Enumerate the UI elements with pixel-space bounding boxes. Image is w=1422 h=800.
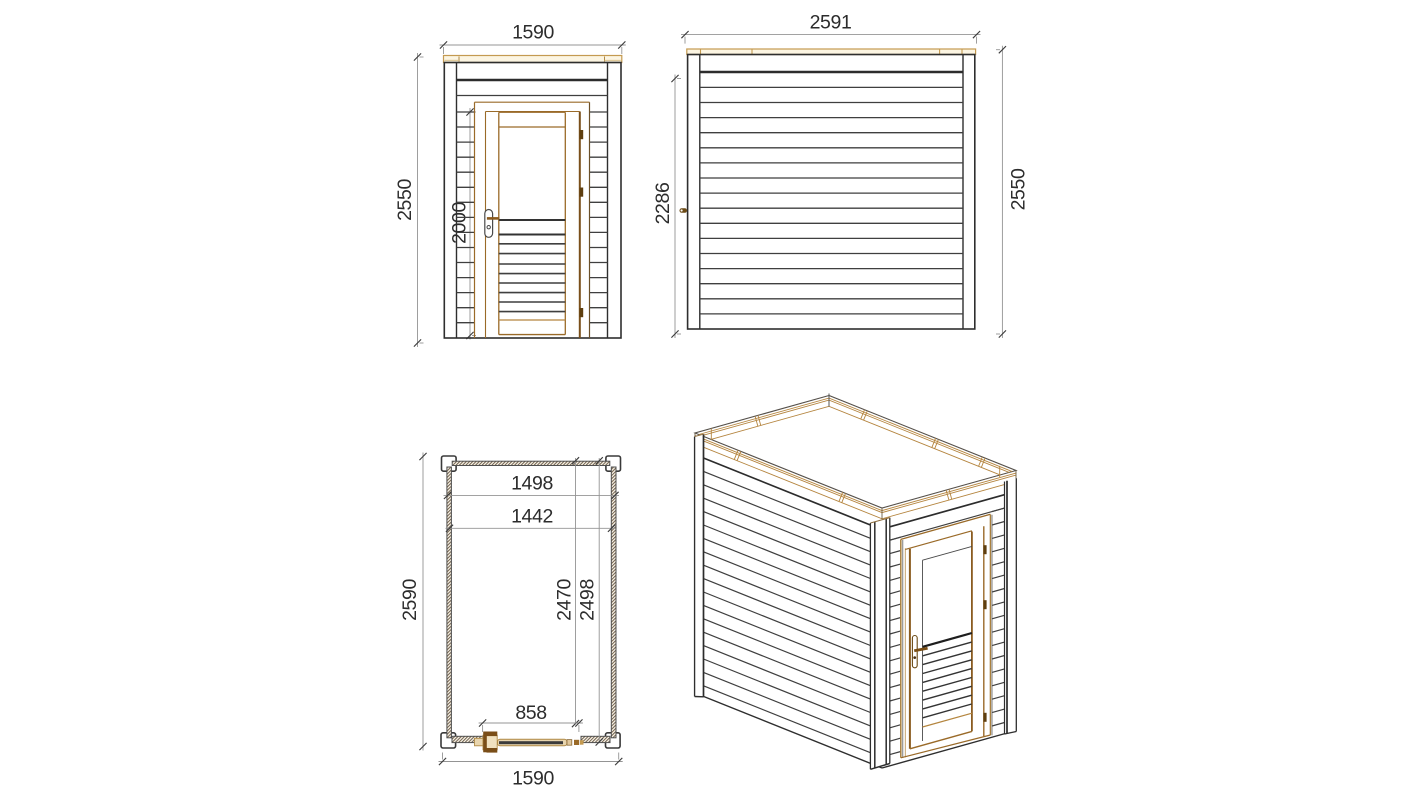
svg-text:1498: 1498 bbox=[511, 473, 553, 495]
svg-text:1590: 1590 bbox=[512, 768, 554, 790]
svg-text:2590: 2590 bbox=[399, 579, 421, 621]
svg-text:2470: 2470 bbox=[553, 579, 575, 621]
svg-text:1442: 1442 bbox=[511, 506, 553, 528]
svg-text:2286: 2286 bbox=[652, 183, 674, 225]
svg-text:2550: 2550 bbox=[394, 179, 416, 221]
svg-text:2000: 2000 bbox=[449, 202, 471, 244]
svg-text:858: 858 bbox=[515, 702, 546, 724]
svg-text:2550: 2550 bbox=[1008, 168, 1030, 210]
svg-text:2591: 2591 bbox=[810, 12, 852, 34]
svg-text:2498: 2498 bbox=[577, 579, 599, 621]
svg-text:1590: 1590 bbox=[512, 22, 554, 44]
